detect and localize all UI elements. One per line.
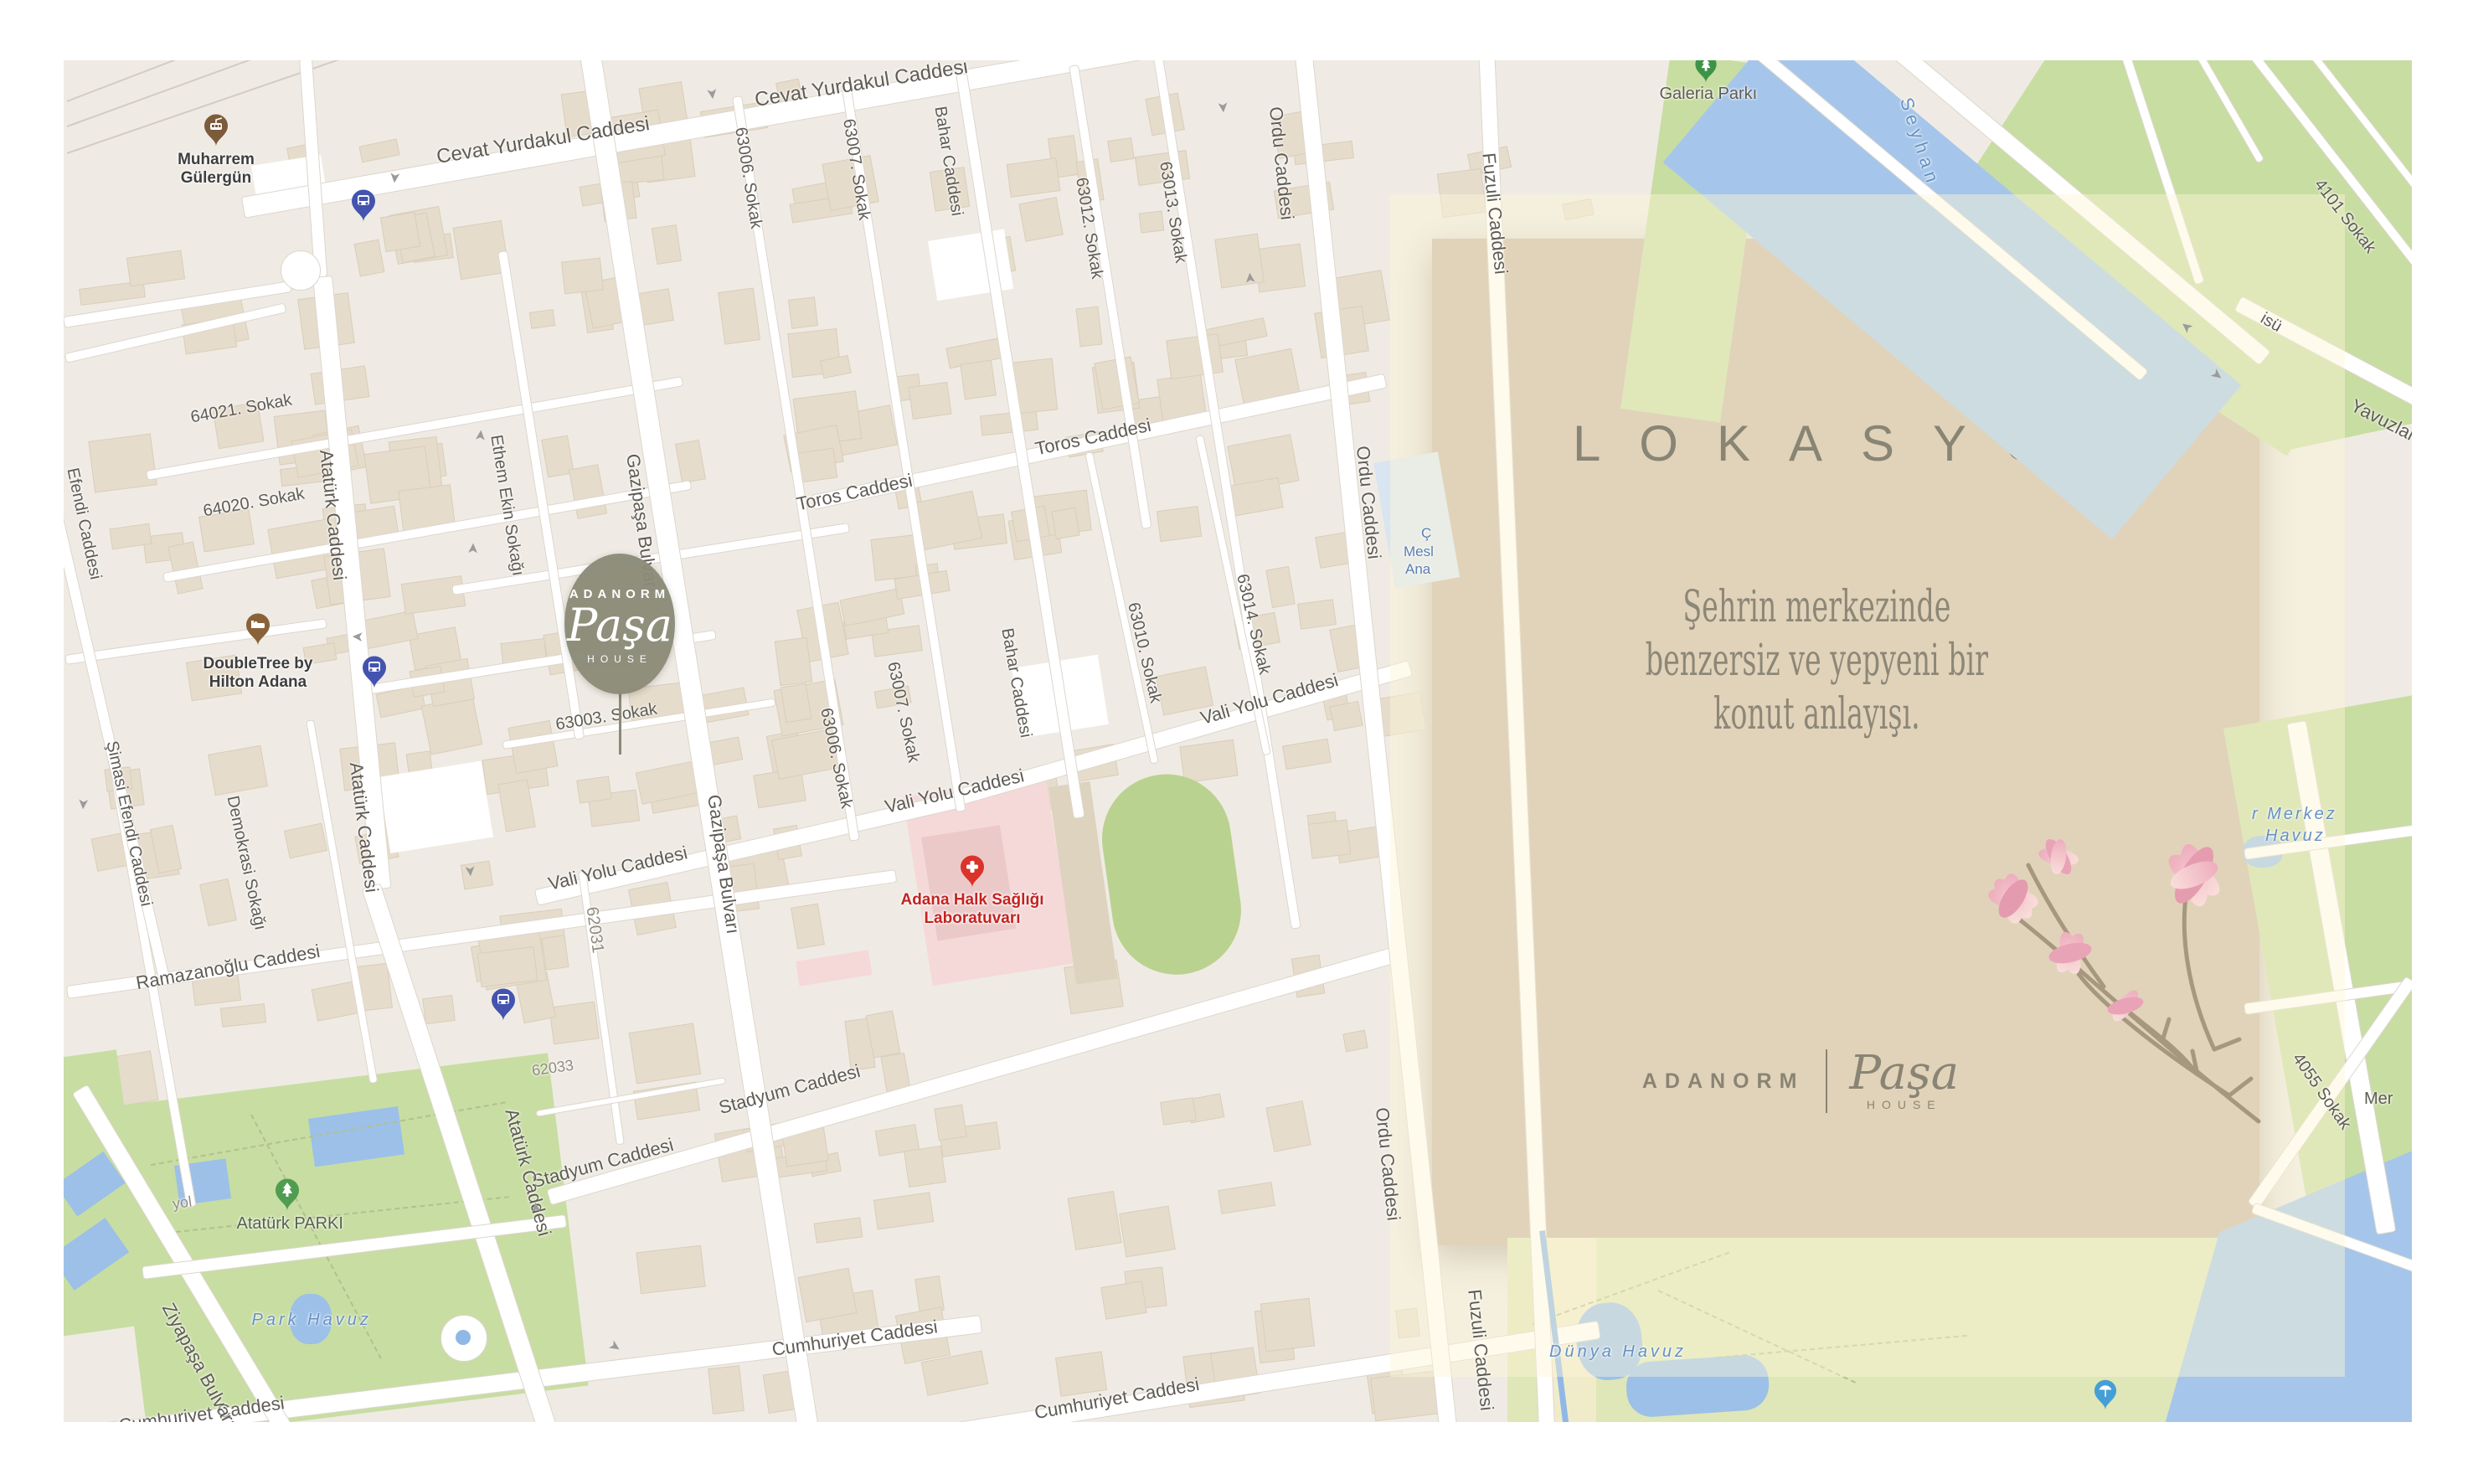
building [1157,506,1203,542]
building [1330,701,1363,731]
bus-stop-icon[interactable] [491,988,516,1026]
map-pin-brand-sub: HOUSE [564,653,675,665]
street-label: Şimasi Efendi Caddesi [101,739,155,908]
building [1297,599,1336,630]
one-way-arrow-icon: ➤ [386,171,404,184]
street-label: Atatürk PARKI [237,1214,343,1234]
building [1055,1351,1107,1396]
building [908,382,951,420]
street-label: r Merkez [2252,805,2337,824]
one-way-arrow-icon: ➤ [1242,271,1260,285]
building [421,695,482,755]
adana-halk-sagligi-laboratuvari-icon[interactable] [960,855,985,893]
roundabout-pool [456,1330,471,1345]
building [873,1193,934,1230]
building [1265,566,1296,608]
one-way-arrow-icon: ➤ [465,543,482,555]
building [1139,211,1165,234]
map-canvas[interactable]: Cevat Yurdakul CaddesiCevat Yurdakul Cad… [64,60,2412,1422]
building [477,946,538,987]
building [708,1365,744,1414]
street-label: Mer [2364,1090,2393,1109]
building [1179,739,1239,782]
building [1161,1097,1197,1126]
one-way-arrow-icon: ➤ [472,429,490,442]
building [1260,1298,1315,1352]
building [775,637,812,686]
building [1218,1182,1275,1214]
building [1342,1030,1368,1053]
rail-line [67,60,373,102]
building [1075,306,1102,347]
building [797,1268,857,1323]
street-label: Park Havuz [252,1311,372,1330]
building [88,433,157,492]
one-way-arrow-icon: ➤ [703,87,721,101]
street-label: 63007. Sokak [883,660,923,764]
one-way-arrow-icon: ➤ [461,864,479,878]
building [1370,1371,1439,1421]
building [718,287,760,344]
building [628,1023,700,1085]
bus-stop-icon[interactable] [351,189,376,227]
map-area [1094,766,1249,983]
one-way-arrow-icon: ➤ [605,1337,625,1358]
building [1052,508,1080,539]
doubletree-by-hilton-adana-icon[interactable] [245,613,270,651]
building [1265,1100,1311,1152]
building [284,823,327,859]
building [1007,158,1061,198]
building [529,309,555,329]
building [576,775,611,803]
ataturk-parki-pin-icon[interactable] [275,1178,300,1216]
building [675,440,706,484]
beach-pin-icon[interactable] [2094,1379,2117,1415]
road [1069,64,1151,529]
building [636,1245,706,1294]
adanorm-map-pin[interactable]: ADANORM Paşa HOUSE [564,554,675,694]
building [568,464,606,519]
building [1308,820,1352,859]
muharrem-gulergun-icon[interactable] [204,114,229,152]
muharrem-gulergun-label: MuharremGülergün [178,151,255,188]
adana-halk-sagligi-laboratuvari-label: Adana Halk SağlığıLaboratuvarı [900,891,1043,928]
street-label: Mesl [1404,544,1434,560]
building [1068,1191,1122,1250]
roundabout [281,250,321,291]
street-label: Ç [1421,525,1431,542]
card-backdrop-wash [1390,194,2345,1377]
building [220,1003,266,1027]
doubletree-by-hilton-adana-label: DoubleTree byHilton Adana [204,655,313,692]
one-way-arrow-icon: ➤ [75,797,92,810]
building [788,296,818,328]
building [561,257,604,294]
building [1100,1281,1147,1321]
building [423,995,456,1024]
building [934,1105,967,1141]
street-label: 64020. Sokak [202,484,306,521]
street-label: Dünya Havuz [1549,1342,1687,1362]
building [208,745,268,796]
building [904,1146,946,1188]
building [1107,137,1134,162]
building [1166,332,1224,379]
map-pin-brand-script: Paşa [564,601,675,650]
adanorm-map-pin-stem [619,691,621,755]
one-way-arrow-icon: ➤ [1214,100,1232,114]
building [549,1002,599,1045]
building [380,211,421,251]
street-label: yol [171,1193,193,1213]
building [199,879,237,926]
building [814,1218,863,1244]
building [359,138,400,162]
building [1282,739,1332,770]
building [542,935,569,971]
street-label: 63006. Sokak [730,126,765,229]
map-area [379,761,493,853]
street-label: Ethem Ekin Sokağı [486,433,527,577]
one-way-arrow-icon: ➤ [351,628,363,646]
map-area [796,950,873,986]
one-way-arrow-icon: ➤ [528,1201,545,1214]
building [353,240,384,277]
building [652,224,682,265]
building [1018,198,1063,242]
galeria-parki-pin-icon[interactable] [1694,60,1718,88]
building [126,250,186,287]
building [960,360,997,400]
street-label: Ana [1405,561,1430,578]
bus-stop-icon[interactable] [362,656,387,693]
street-label: Havuz [2265,827,2326,846]
building [1119,1206,1175,1258]
building [791,903,825,948]
